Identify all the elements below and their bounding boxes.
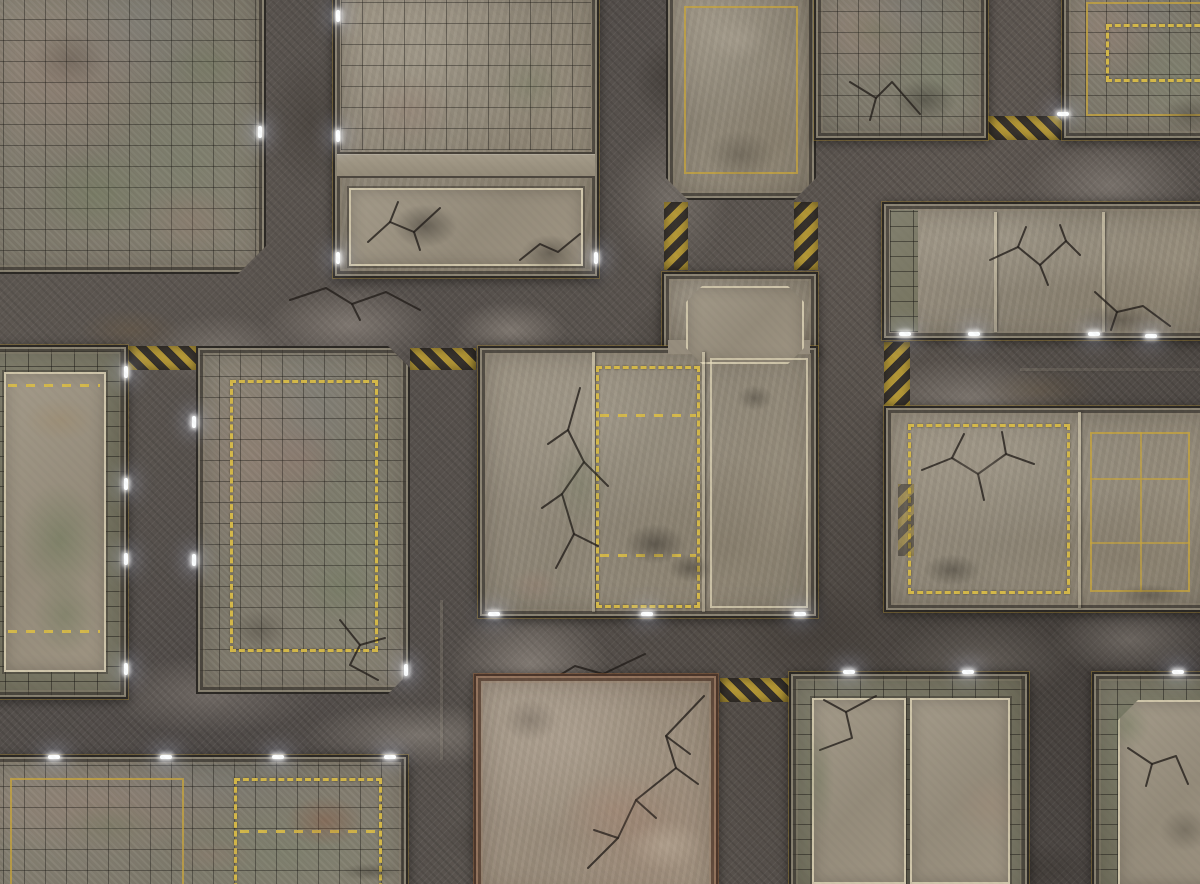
moss-stain	[830, 0, 920, 60]
edge-light	[404, 664, 408, 676]
moss-stain	[150, 20, 270, 110]
hazard-strip	[884, 342, 910, 410]
debris-stain	[730, 380, 780, 416]
edge-light	[124, 553, 128, 565]
soot-stain	[220, 600, 300, 660]
moss-stain	[20, 560, 110, 670]
rubble-stain	[930, 436, 1030, 491]
soot-stain	[20, 20, 120, 100]
rust-stain	[10, 390, 110, 450]
moss-stain	[1098, 690, 1158, 760]
soot-stain	[1100, 580, 1200, 610]
edge-light	[968, 332, 980, 336]
debris-stain	[912, 548, 992, 592]
walkway-band	[337, 152, 595, 178]
dust-stain	[700, 10, 780, 70]
rust-stain	[940, 760, 1040, 850]
debris-crack	[368, 192, 440, 254]
tile-crack	[330, 620, 400, 680]
edge-light	[336, 130, 340, 142]
edge-light	[272, 755, 284, 759]
moss-stain	[480, 40, 580, 130]
hazard-strip	[410, 348, 476, 370]
edge-light	[1057, 112, 1069, 116]
edge-light	[258, 126, 262, 138]
edge-light	[336, 10, 340, 22]
rust-red-stain	[270, 786, 380, 856]
slab-joint-line	[1078, 412, 1081, 608]
rust-stain	[350, 60, 470, 160]
debris-crack	[520, 230, 580, 270]
rust-stain	[120, 170, 260, 270]
moss-stain	[540, 420, 620, 550]
hazard-strip	[986, 116, 1064, 140]
hazard-strip	[664, 202, 688, 270]
soot-stain	[690, 120, 790, 190]
hazard-strip	[128, 346, 196, 370]
soot-stain	[490, 690, 570, 750]
edge-light	[1088, 332, 1100, 336]
edge-light	[124, 478, 128, 490]
battle-mat	[0, 0, 1200, 884]
rust-stain	[250, 410, 360, 510]
edge-light	[641, 612, 653, 616]
rubble-stain	[930, 230, 1010, 280]
debris-stain	[660, 548, 720, 588]
hazard-wear-marks	[898, 484, 914, 556]
edge-light	[160, 755, 172, 759]
dust-stain	[610, 810, 720, 880]
road-crack	[290, 278, 420, 320]
gold-line	[1140, 432, 1142, 592]
soot-stain	[330, 860, 410, 884]
edge-light	[192, 554, 196, 566]
rust-stain	[140, 830, 280, 880]
edge-light	[192, 416, 196, 428]
tile-crack	[850, 70, 920, 125]
edge-light	[1145, 334, 1157, 338]
edge-light	[48, 755, 60, 759]
edge-light	[336, 252, 340, 264]
edge-light	[124, 366, 128, 378]
edge-light	[1172, 670, 1184, 674]
moss-stain	[290, 550, 390, 630]
worn-road-line	[1020, 368, 1200, 371]
edge-light	[124, 663, 128, 675]
dashed-marking-line	[8, 384, 100, 387]
edge-light	[384, 755, 396, 759]
soot-stain	[1060, 300, 1180, 340]
worn-road-line	[440, 600, 443, 760]
edge-light	[843, 670, 855, 674]
dashed-marking-line	[8, 630, 100, 633]
hazard-strip	[720, 678, 790, 702]
paver-edge-strip	[890, 210, 918, 332]
edge-light	[794, 612, 806, 616]
edge-light	[488, 612, 500, 616]
hazard-strip	[794, 202, 818, 270]
rust-stain	[500, 560, 570, 610]
edge-light	[594, 252, 598, 264]
edge-light	[899, 332, 911, 336]
moss-stain	[800, 700, 840, 860]
dashed-marking-frame	[1106, 24, 1200, 82]
edge-light	[962, 670, 974, 674]
